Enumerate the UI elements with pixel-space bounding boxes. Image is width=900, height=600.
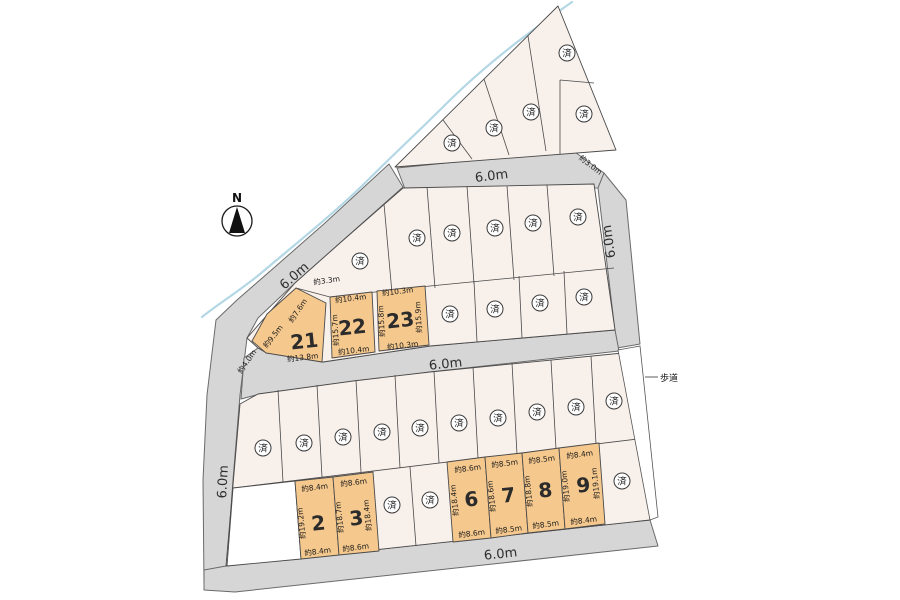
sold-mark: 済 xyxy=(374,424,390,440)
lot-21-number: 21 xyxy=(289,328,319,355)
north-compass: N xyxy=(222,191,252,236)
lot-6-number: 6 xyxy=(463,486,479,511)
sold-mark: 済 xyxy=(412,420,428,436)
sold-mark: 済 xyxy=(570,209,586,225)
svg-text:済: 済 xyxy=(493,413,503,425)
svg-text:済: 済 xyxy=(447,228,457,240)
svg-text:済: 済 xyxy=(377,427,387,439)
lot-23-dim-left: 約15.8m xyxy=(375,305,387,337)
sold-mark: 済 xyxy=(335,429,351,445)
lot-8-number: 8 xyxy=(537,477,553,502)
svg-text:済: 済 xyxy=(526,107,536,119)
svg-text:済: 済 xyxy=(454,418,464,430)
svg-text:済: 済 xyxy=(355,256,365,268)
sold-mark: 済 xyxy=(422,492,438,508)
sold-mark: 済 xyxy=(490,410,506,426)
svg-text:済: 済 xyxy=(579,109,589,121)
sold-mark: 済 xyxy=(296,435,312,451)
svg-text:済: 済 xyxy=(415,423,425,435)
sold-mark: 済 xyxy=(576,289,592,305)
block-north-outline xyxy=(395,6,616,167)
lot-9-number: 9 xyxy=(575,472,591,497)
sold-mark: 済 xyxy=(451,415,467,431)
sold-mark: 済 xyxy=(532,295,548,311)
svg-text:済: 済 xyxy=(387,500,397,512)
sold-mark: 済 xyxy=(409,230,425,246)
svg-text:済: 済 xyxy=(562,48,572,60)
sold-mark: 済 xyxy=(444,135,460,151)
svg-text:済: 済 xyxy=(425,495,435,507)
svg-text:済: 済 xyxy=(528,218,538,230)
sold-mark: 済 xyxy=(486,120,502,136)
sold-mark: 済 xyxy=(529,404,545,420)
lot-22-number: 22 xyxy=(337,314,367,341)
sidewalk-callout: 歩道 xyxy=(645,372,678,384)
svg-text:済: 済 xyxy=(490,304,500,316)
svg-text:済: 済 xyxy=(579,292,589,304)
svg-text:済: 済 xyxy=(573,212,583,224)
sold-mark: 済 xyxy=(614,473,630,489)
svg-text:済: 済 xyxy=(412,233,422,245)
svg-text:済: 済 xyxy=(489,123,499,135)
land-plot-map: 済 済 済 済 済 済 済 済 済 済 済 済 済 済 済 済 済 済 済 済 … xyxy=(0,0,900,600)
sold-mark: 済 xyxy=(444,225,460,241)
svg-text:済: 済 xyxy=(571,402,581,414)
svg-text:済: 済 xyxy=(299,438,309,450)
svg-text:済: 済 xyxy=(258,443,268,455)
sold-mark: 済 xyxy=(352,253,368,269)
sold-mark: 済 xyxy=(606,393,622,409)
svg-text:済: 済 xyxy=(338,432,348,444)
sold-mark: 済 xyxy=(559,45,575,61)
sold-mark: 済 xyxy=(576,106,592,122)
sold-mark: 済 xyxy=(442,306,458,322)
svg-text:済: 済 xyxy=(490,223,500,235)
plot-map-page: 済 済 済 済 済 済 済 済 済 済 済 済 済 済 済 済 済 済 済 済 … xyxy=(0,0,900,600)
sold-mark: 済 xyxy=(487,220,503,236)
lot-22-dim-left: 約15.7m xyxy=(329,314,341,346)
north-label: N xyxy=(232,191,242,205)
svg-text:済: 済 xyxy=(532,407,542,419)
road-label-left: 6.0m xyxy=(215,465,232,499)
lot-2-number: 2 xyxy=(310,510,326,535)
block-north xyxy=(395,6,616,167)
svg-text:済: 済 xyxy=(447,138,457,150)
svg-text:済: 済 xyxy=(609,396,619,408)
sold-mark: 済 xyxy=(384,497,400,513)
svg-text:済: 済 xyxy=(617,476,627,488)
lot-7-number: 7 xyxy=(500,482,516,507)
sold-mark: 済 xyxy=(487,301,503,317)
sidewalk-label: 歩道 xyxy=(660,372,678,384)
lot-23-dim-right: 約15.9m xyxy=(412,301,424,333)
sold-mark: 済 xyxy=(568,399,584,415)
sold-mark: 済 xyxy=(525,215,541,231)
lot-23-number: 23 xyxy=(385,307,415,334)
sold-mark: 済 xyxy=(255,440,271,456)
sold-mark: 済 xyxy=(523,104,539,120)
svg-text:済: 済 xyxy=(535,298,545,310)
lot-unmarked xyxy=(227,481,301,566)
svg-text:済: 済 xyxy=(445,309,455,321)
